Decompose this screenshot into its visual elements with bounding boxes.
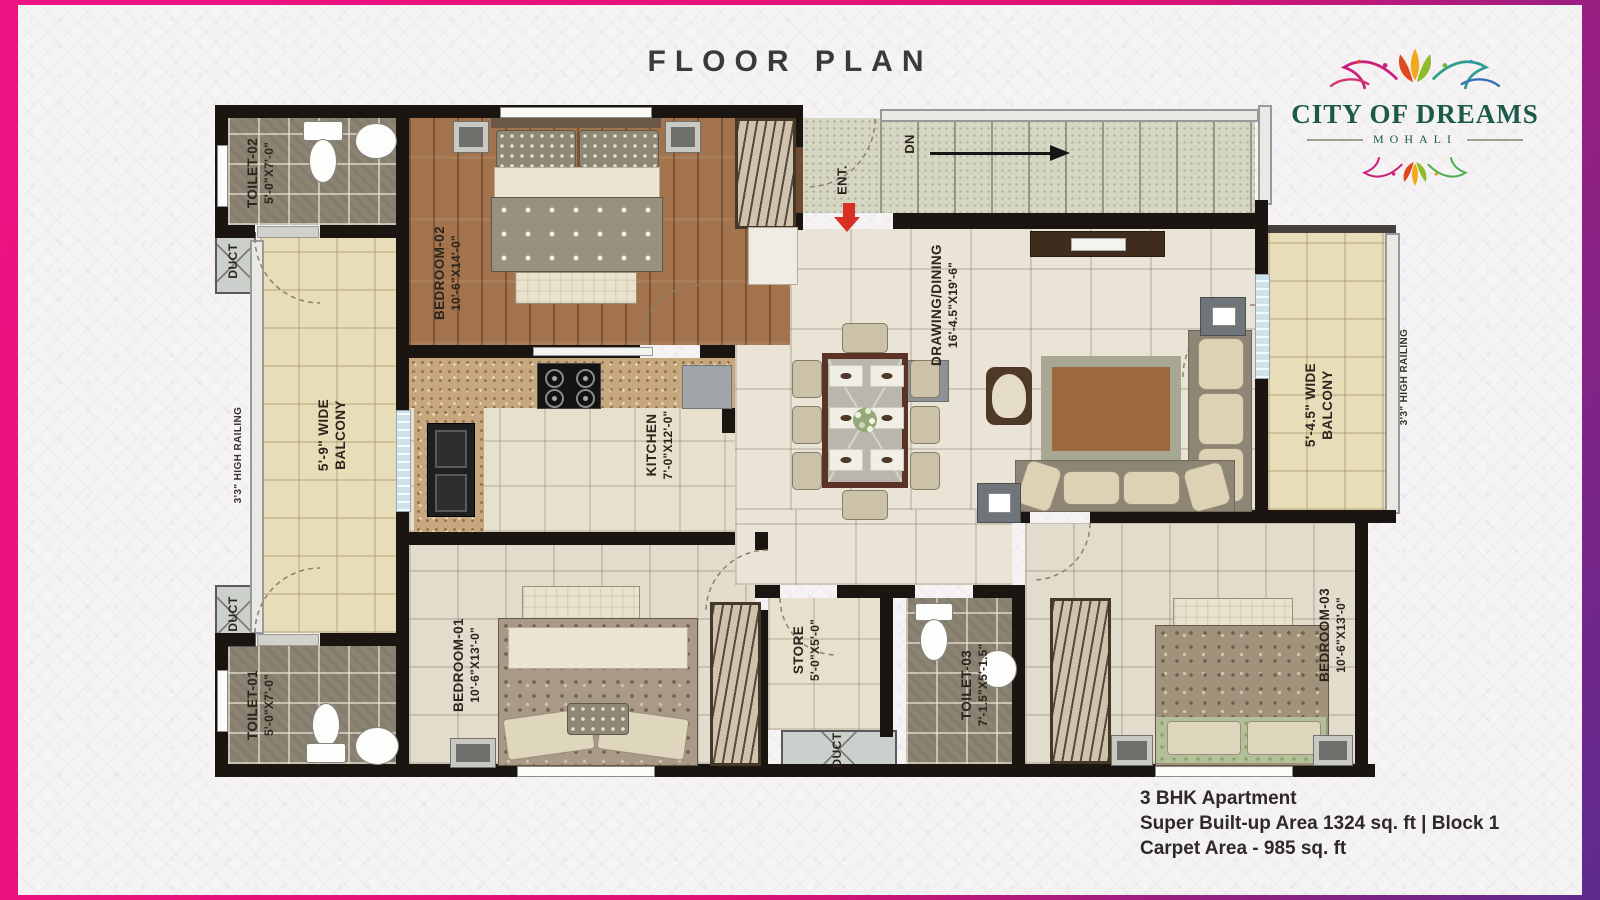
store-label: STORE5'-0"X5'-0"	[787, 595, 827, 705]
summary-line-3: Carpet Area - 985 sq. ft	[1140, 836, 1580, 861]
pillow	[567, 703, 629, 735]
balcony-left-label: 5'-9" WIDEBALCONY	[311, 360, 355, 510]
toilet-bowl	[309, 139, 337, 183]
stairs-down-arrow-head-icon	[1050, 145, 1070, 161]
entrance-arrow-icon	[834, 217, 860, 232]
apartment-summary: 3 BHK Apartment Super Built-up Area 1324…	[1140, 786, 1580, 861]
rug	[1041, 356, 1181, 462]
nightstand	[453, 121, 489, 153]
gas-stove	[537, 363, 601, 409]
floor-plan: TOILET-025'-0"X7'-0" DUCT 5'-9" WIDEBALC…	[215, 105, 1425, 785]
side-table	[1200, 297, 1246, 336]
toilet-03-label: TOILET-037'-1.5"X5'-1.5"	[955, 625, 995, 745]
dining-chair	[792, 406, 822, 444]
duct-label: DUCT	[829, 723, 845, 777]
stairs-down-arrow	[930, 152, 1052, 155]
nightstand	[1313, 735, 1353, 766]
place-setting	[829, 449, 863, 471]
bedroom-02-label: BEDROOM-0210'-6"X14'-0"	[427, 173, 469, 373]
pillow	[1247, 721, 1321, 755]
armchair-seat	[992, 374, 1026, 418]
toilet-bowl	[312, 703, 340, 747]
bed-sheet	[494, 167, 660, 199]
dining-chair	[792, 360, 822, 398]
dining-chair	[792, 452, 822, 490]
pillow	[579, 130, 659, 168]
washbasin	[355, 727, 399, 765]
kitchen-label: KITCHEN7'-0"X12'-0"	[640, 365, 680, 525]
dining-chair	[842, 490, 888, 520]
washbasin	[355, 123, 397, 159]
page-title: FLOOR PLAN	[520, 45, 1060, 79]
logo-ornament-top-icon	[1300, 43, 1530, 99]
cupboard	[748, 227, 798, 285]
flower-centerpiece	[848, 403, 882, 437]
nightstand	[1111, 735, 1153, 766]
bed-bench	[515, 272, 637, 304]
bed-bench	[522, 586, 640, 620]
kitchen-window-shelf	[533, 347, 653, 356]
wardrobe	[735, 118, 796, 229]
sofa-cushion	[1198, 338, 1244, 390]
duct-label: DUCT	[225, 234, 241, 288]
bedroom-03-label: BEDROOM-0310'-6"X13'-0"	[1312, 535, 1354, 735]
console-table	[1030, 231, 1165, 257]
stairs-down-label: DN	[900, 129, 920, 159]
console-tray	[1071, 238, 1126, 251]
pillow	[1167, 721, 1241, 755]
sofa-cushion	[1198, 393, 1244, 445]
toilet-tank	[306, 743, 346, 763]
sink-basin	[435, 474, 467, 512]
side-table	[977, 483, 1021, 523]
bed-duvet	[491, 197, 663, 272]
sofa-cushion	[1123, 471, 1180, 505]
place-setting	[870, 449, 904, 471]
nightstand	[665, 121, 701, 153]
railing-left-label: 3'3" HIGH RAILING	[232, 395, 246, 515]
gradient-border-frame: FLOOR PLAN CITY OF DREAMS MOHALI	[0, 0, 1600, 900]
toilet-02-label: TOILET-025'-0"X7'-0"	[241, 113, 281, 233]
summary-line-2: Super Built-up Area 1324 sq. ft | Block …	[1140, 811, 1580, 836]
bed-headboard	[491, 118, 661, 128]
toilet-tank	[303, 121, 343, 141]
refrigerator	[682, 365, 732, 409]
sink-basin	[435, 430, 467, 468]
bedroom-01-label: BEDROOM-0110'-6"X13'-0"	[446, 565, 488, 765]
duct-label: DUCT	[225, 587, 241, 641]
toilet-01-label: TOILET-015'-0"X7'-0"	[241, 645, 281, 765]
dining-chair	[910, 406, 940, 444]
toilet-bowl	[920, 619, 948, 661]
place-setting	[829, 365, 863, 387]
bed-sheet	[508, 627, 688, 669]
dining-chair	[842, 323, 888, 353]
wardrobe	[1050, 598, 1111, 764]
entrance-label: ENT.	[835, 158, 851, 203]
wardrobe	[710, 602, 761, 766]
armchair	[986, 367, 1032, 425]
railing-right-label: 3'3" HIGH RAILING	[1398, 317, 1412, 437]
divider-line	[1467, 139, 1523, 141]
balcony-right-label: 5'-4.5" WIDEBALCONY	[1298, 330, 1342, 480]
entrance-arrow-icon	[843, 203, 855, 217]
dining-chair	[910, 452, 940, 490]
drawing-dining-label: DRAWING/DINING16'-4.5"X19'-6"	[922, 200, 968, 410]
page-background: FLOOR PLAN CITY OF DREAMS MOHALI	[18, 5, 1582, 895]
pillow	[496, 130, 576, 168]
sofa-cushion	[1063, 471, 1120, 505]
summary-line-1: 3 BHK Apartment	[1140, 786, 1580, 811]
kitchen-sink	[427, 423, 475, 517]
place-setting	[870, 365, 904, 387]
